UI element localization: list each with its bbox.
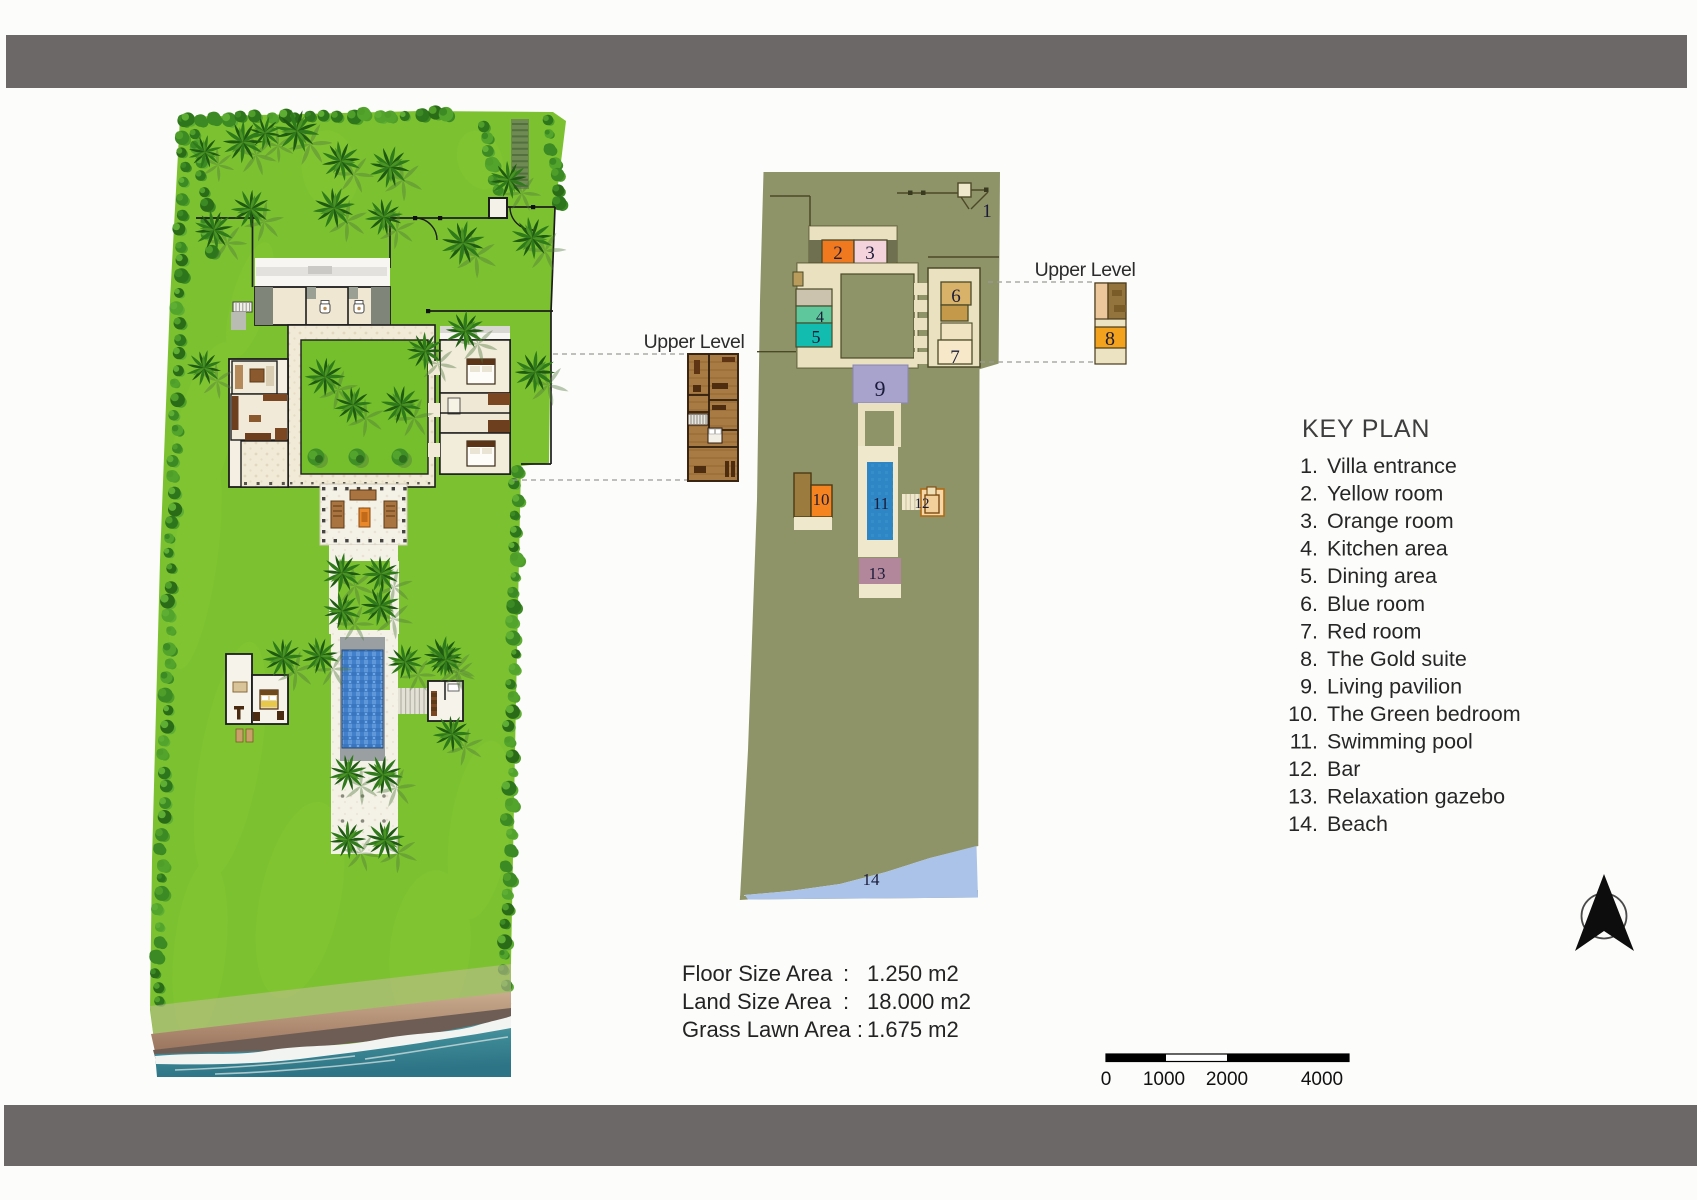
- svg-text:1000: 1000: [1143, 1069, 1185, 1090]
- svg-text:Yellow room: Yellow room: [1327, 482, 1443, 506]
- svg-text:9: 9: [875, 376, 886, 401]
- svg-text:3: 3: [865, 243, 875, 264]
- svg-text:Upper Level: Upper Level: [644, 331, 745, 353]
- svg-text:Villa entrance: Villa entrance: [1327, 454, 1457, 478]
- svg-text:4: 4: [816, 309, 824, 326]
- svg-text:6: 6: [951, 286, 961, 307]
- svg-text:14.: 14.: [1288, 812, 1318, 836]
- svg-text:The Gold suite: The Gold suite: [1327, 647, 1467, 671]
- svg-text:4000: 4000: [1301, 1069, 1343, 1090]
- svg-text:12: 12: [915, 496, 930, 512]
- svg-text:The Green bedroom: The Green bedroom: [1327, 702, 1521, 726]
- svg-text:14: 14: [863, 870, 881, 889]
- svg-text:8: 8: [1105, 328, 1115, 350]
- svg-text:1.250 m2: 1.250 m2: [867, 961, 959, 986]
- svg-text:5.: 5.: [1300, 564, 1318, 588]
- svg-text:2000: 2000: [1206, 1069, 1248, 1090]
- svg-text:7: 7: [950, 347, 960, 368]
- svg-text:12.: 12.: [1288, 757, 1318, 781]
- svg-text:Relaxation gazebo: Relaxation gazebo: [1327, 785, 1505, 809]
- svg-text:1: 1: [982, 201, 992, 222]
- svg-text:8.: 8.: [1300, 647, 1318, 671]
- svg-text:Beach: Beach: [1327, 812, 1388, 836]
- svg-text:Living pavilion: Living pavilion: [1327, 674, 1462, 698]
- svg-text:11.: 11.: [1290, 730, 1318, 754]
- svg-text:13: 13: [869, 564, 886, 583]
- svg-text:Blue room: Blue room: [1327, 592, 1425, 616]
- svg-text:2.: 2.: [1300, 482, 1318, 506]
- svg-text:Upper Level: Upper Level: [1035, 259, 1136, 281]
- svg-text:1.675 m2: 1.675 m2: [867, 1017, 959, 1042]
- svg-text:6.: 6.: [1300, 592, 1318, 616]
- svg-text:Red room: Red room: [1327, 619, 1421, 643]
- svg-text:2: 2: [833, 243, 843, 264]
- svg-text:Floor Size Area: Floor Size Area: [682, 961, 833, 986]
- svg-text:1.: 1.: [1300, 454, 1318, 478]
- svg-text:Kitchen area: Kitchen area: [1327, 537, 1448, 561]
- svg-text:9.: 9.: [1300, 674, 1318, 698]
- svg-text:18.000 m2: 18.000 m2: [867, 989, 971, 1014]
- svg-text:4.: 4.: [1300, 537, 1318, 561]
- svg-text:Dining area: Dining area: [1327, 564, 1437, 588]
- svg-text:10.: 10.: [1288, 702, 1318, 726]
- svg-text:Swimming pool: Swimming pool: [1327, 730, 1473, 754]
- svg-text:11: 11: [873, 494, 889, 513]
- svg-text::: :: [843, 961, 849, 986]
- svg-text:7.: 7.: [1300, 619, 1318, 643]
- svg-text:5: 5: [812, 327, 821, 347]
- svg-text:Land Size Area: Land Size Area: [682, 989, 832, 1014]
- svg-text:Grass Lawn Area :: Grass Lawn Area :: [682, 1017, 863, 1042]
- svg-text:3.: 3.: [1300, 509, 1318, 533]
- svg-text:KEY PLAN: KEY PLAN: [1302, 415, 1430, 443]
- svg-text:13.: 13.: [1288, 785, 1318, 809]
- svg-text:Bar: Bar: [1327, 757, 1360, 781]
- svg-text:10: 10: [813, 490, 830, 509]
- svg-text::: :: [843, 989, 849, 1014]
- svg-text:Orange room: Orange room: [1327, 509, 1454, 533]
- svg-text:0: 0: [1101, 1069, 1112, 1090]
